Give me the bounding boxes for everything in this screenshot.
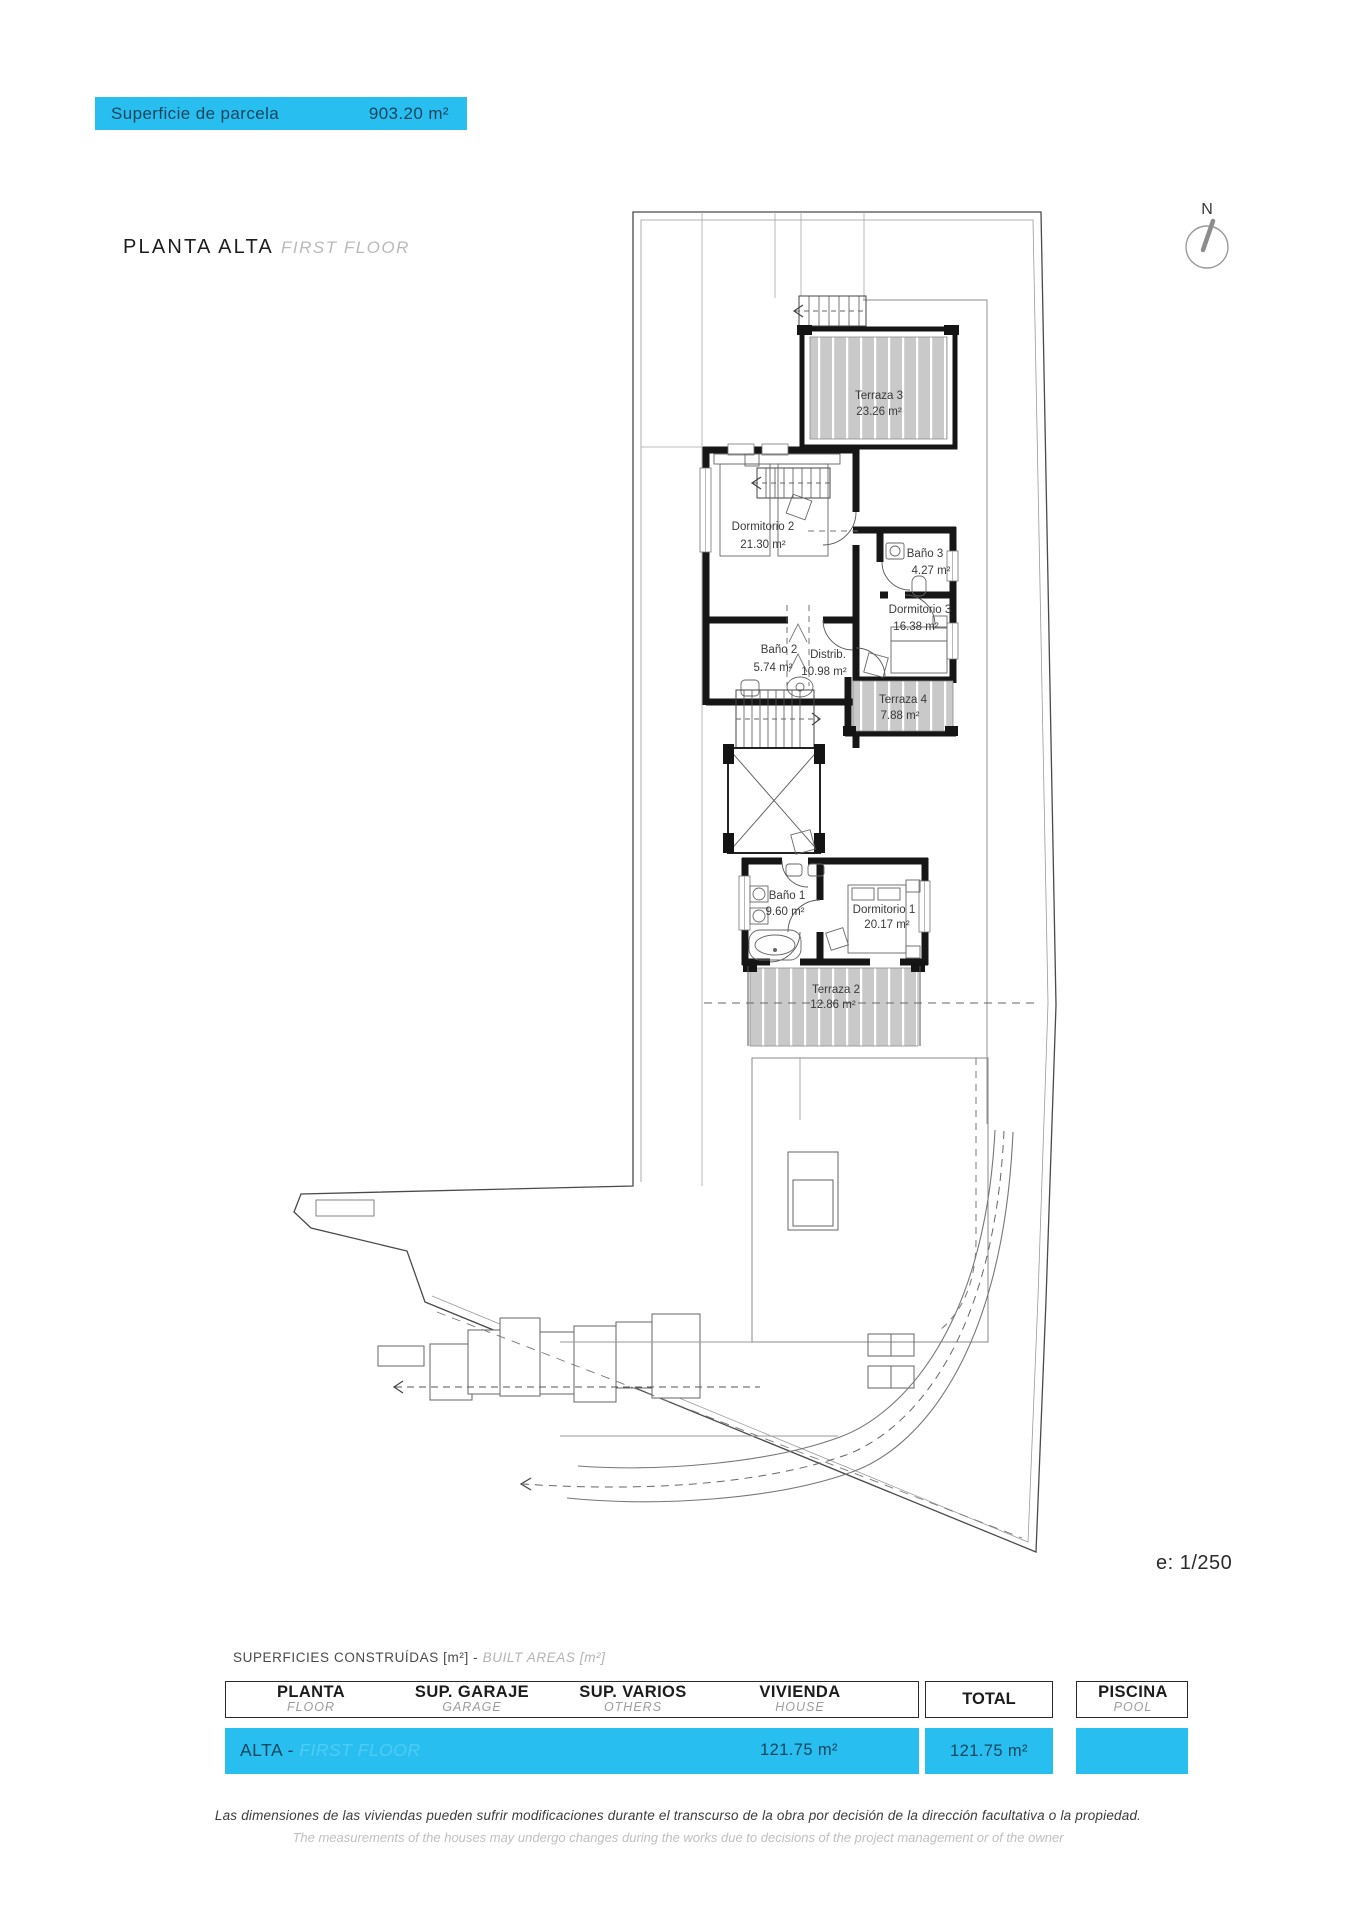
svg-text:Distrib.: Distrib. (810, 649, 846, 661)
north-arrow-icon: N (1186, 201, 1228, 268)
col-total: TOTAL (926, 1690, 1052, 1709)
svg-text:5.74 m²: 5.74 m² (754, 662, 793, 674)
terrace-4: Terraza 4 7.88 m² (843, 681, 958, 736)
areas-row-total: 121.75 m² (925, 1728, 1053, 1774)
disclaimer-es: Las dimensiones de las viviendas pueden … (0, 1808, 1356, 1823)
col-vivienda: VIVIENDA HOUSE (759, 1684, 840, 1714)
floor-plan-drawing: N (0, 0, 1356, 1920)
built-areas-caption-en: BUILT AREAS [m²] (483, 1650, 606, 1665)
areas-row-main: ALTA - FIRST FLOOR 121.75 m² (225, 1728, 919, 1774)
svg-text:Terraza 3: Terraza 3 (855, 390, 903, 402)
built-areas-caption: SUPERFICIES CONSTRUÍDAS [m²] - BUILT ARE… (233, 1650, 606, 1665)
garage-roof-steps (378, 1314, 838, 1436)
areas-row-pool (1076, 1728, 1188, 1774)
disclaimer-en: The measurements of the houses may under… (0, 1830, 1356, 1845)
svg-text:16.38 m²: 16.38 m² (893, 621, 939, 633)
svg-text:Dormitorio 2: Dormitorio 2 (732, 521, 795, 533)
svg-text:Baño 1: Baño 1 (769, 890, 805, 902)
drawing-scale: e: 1/250 (1156, 1552, 1232, 1575)
col-varios: SUP. VARIOS OTHERS (579, 1684, 686, 1714)
svg-text:20.17 m²: 20.17 m² (864, 919, 910, 931)
terrace-3: Terraza 3 23.26 m² (797, 325, 959, 447)
exterior-stairs-upper (794, 296, 866, 326)
col-garaje: SUP. GARAJE GARAGE (415, 1684, 529, 1714)
svg-text:7.88 m²: 7.88 m² (881, 710, 920, 722)
areas-row-total-value: 121.75 m² (950, 1742, 1028, 1761)
disclaimer: Las dimensiones de las viviendas pueden … (0, 1808, 1356, 1845)
svg-text:23.26 m²: 23.26 m² (856, 406, 902, 418)
svg-text:Terraza 2: Terraza 2 (812, 984, 860, 996)
svg-text:N: N (1201, 201, 1213, 218)
col-piscina: PISCINA POOL (1098, 1684, 1168, 1714)
areas-row-house-value: 121.75 m² (760, 1741, 838, 1760)
areas-table-header: PLANTA FLOOR SUP. GARAJE GARAGE SUP. VAR… (225, 1681, 919, 1718)
svg-text:Dormitorio 1: Dormitorio 1 (853, 904, 916, 916)
svg-text:Baño 2: Baño 2 (761, 644, 797, 656)
terrace-2: Terraza 2 12.86 m² (704, 962, 1038, 1046)
areas-row-floor: ALTA - FIRST FLOOR (240, 1740, 420, 1761)
void-shaft (723, 744, 825, 854)
rear-yard (752, 1058, 988, 1388)
built-areas-caption-es: SUPERFICIES CONSTRUÍDAS [m²] - (233, 1650, 483, 1665)
svg-text:4.27 m²: 4.27 m² (912, 565, 951, 577)
svg-text:10.98 m²: 10.98 m² (801, 666, 847, 678)
svg-text:12.86 m²: 12.86 m² (810, 999, 856, 1011)
svg-text:Terraza 4: Terraza 4 (879, 694, 928, 706)
svg-text:9.60 m²: 9.60 m² (766, 906, 805, 918)
areas-table-pool-header: PISCINA POOL (1076, 1681, 1188, 1718)
exterior-stairs-mid (752, 468, 830, 498)
page: { "banner": { "label": "Superficie de pa… (0, 0, 1356, 1920)
svg-text:Baño 3: Baño 3 (907, 548, 943, 560)
col-planta: PLANTA FLOOR (277, 1684, 345, 1714)
svg-text:Dormitorio 3: Dormitorio 3 (889, 604, 952, 616)
areas-table-total-header: TOTAL (925, 1681, 1053, 1718)
svg-text:21.30 m²: 21.30 m² (740, 539, 786, 551)
